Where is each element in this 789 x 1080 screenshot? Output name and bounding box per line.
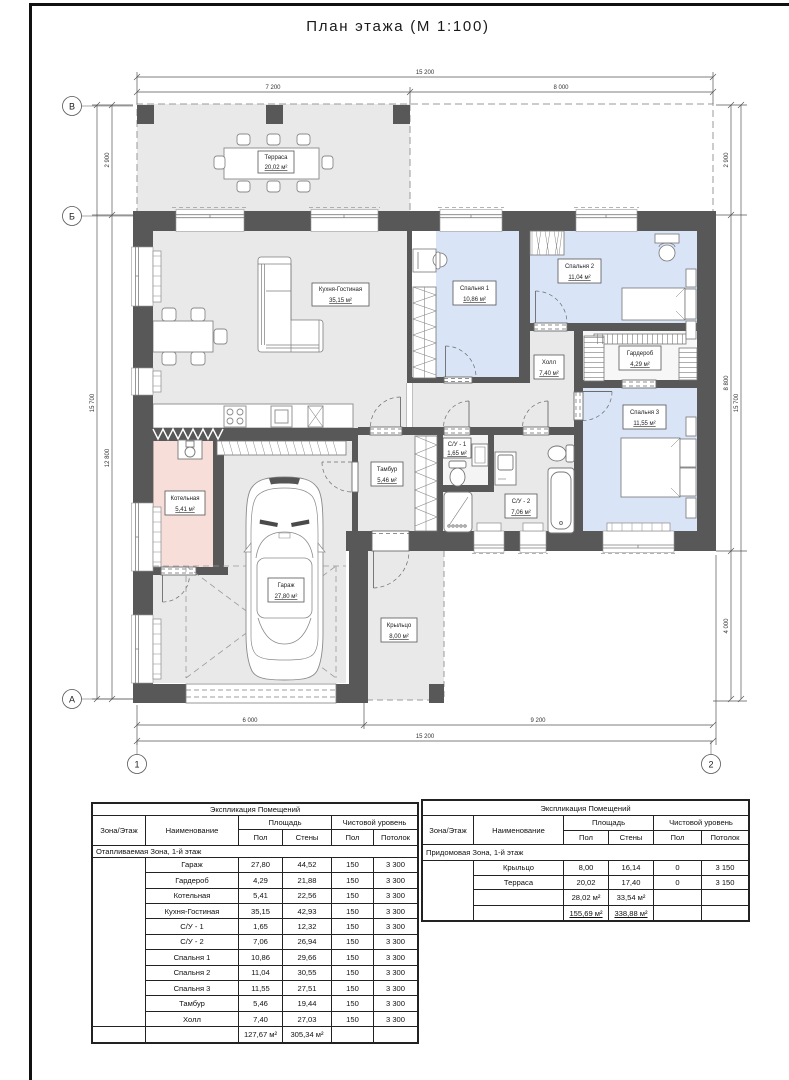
svg-text:2 900: 2 900 bbox=[105, 152, 111, 168]
svg-text:Терраса: Терраса bbox=[264, 155, 288, 161]
svg-text:10,86 м²: 10,86 м² bbox=[463, 297, 486, 303]
svg-text:Спальня 1: Спальня 1 bbox=[460, 286, 490, 292]
svg-text:2: 2 bbox=[708, 760, 713, 770]
svg-text:15 700: 15 700 bbox=[90, 393, 96, 412]
svg-text:Спальня 3: Спальня 3 bbox=[630, 410, 660, 416]
svg-text:15 200: 15 200 bbox=[416, 734, 435, 740]
svg-text:20,02 м²: 20,02 м² bbox=[265, 165, 288, 171]
svg-text:7 200: 7 200 bbox=[265, 85, 281, 91]
svg-text:9 200: 9 200 bbox=[530, 718, 546, 724]
svg-text:8 000: 8 000 bbox=[553, 85, 569, 91]
svg-text:15 700: 15 700 bbox=[734, 393, 740, 412]
svg-text:Гараж: Гараж bbox=[278, 583, 295, 589]
svg-text:Кухня-Гостиная: Кухня-Гостиная bbox=[319, 287, 362, 293]
svg-text:Тамбур: Тамбур bbox=[377, 467, 398, 473]
svg-text:8 800: 8 800 bbox=[724, 375, 730, 391]
svg-text:11,04 м²: 11,04 м² bbox=[568, 275, 590, 281]
svg-text:6 000: 6 000 bbox=[242, 718, 258, 724]
svg-text:Спальня 2: Спальня 2 bbox=[565, 264, 595, 270]
svg-text:Б: Б bbox=[69, 212, 75, 222]
svg-text:7,06 м²: 7,06 м² bbox=[511, 510, 530, 516]
svg-text:2 900: 2 900 bbox=[724, 152, 730, 168]
svg-text:8,00 м²: 8,00 м² bbox=[389, 634, 408, 640]
svg-text:35,15 м²: 35,15 м² bbox=[329, 298, 352, 304]
svg-text:7,40 м²: 7,40 м² bbox=[539, 371, 558, 377]
svg-text:12 800: 12 800 bbox=[105, 448, 111, 467]
svg-text:В: В bbox=[69, 102, 75, 112]
svg-text:5,46 м²: 5,46 м² bbox=[377, 478, 396, 484]
svg-text:11,55 м²: 11,55 м² bbox=[633, 421, 655, 427]
svg-text:4 000: 4 000 bbox=[724, 618, 730, 634]
svg-text:4,29 м²: 4,29 м² bbox=[630, 362, 649, 368]
svg-text:Крыльцо: Крыльцо bbox=[387, 623, 412, 629]
svg-text:Гардероб: Гардероб bbox=[627, 351, 654, 357]
svg-text:5,41 м²: 5,41 м² bbox=[175, 507, 194, 513]
svg-text:Котельная: Котельная bbox=[170, 496, 199, 502]
svg-text:1: 1 bbox=[134, 760, 139, 770]
svg-text:27,80 м²: 27,80 м² bbox=[275, 594, 298, 600]
svg-text:1,65 м²: 1,65 м² bbox=[447, 451, 466, 457]
svg-text:А: А bbox=[69, 695, 75, 705]
svg-text:Холл: Холл bbox=[542, 360, 557, 366]
svg-text:С/У - 1: С/У - 1 bbox=[448, 442, 467, 448]
svg-text:С/У - 2: С/У - 2 bbox=[512, 499, 531, 505]
svg-text:15 200: 15 200 bbox=[416, 70, 435, 76]
